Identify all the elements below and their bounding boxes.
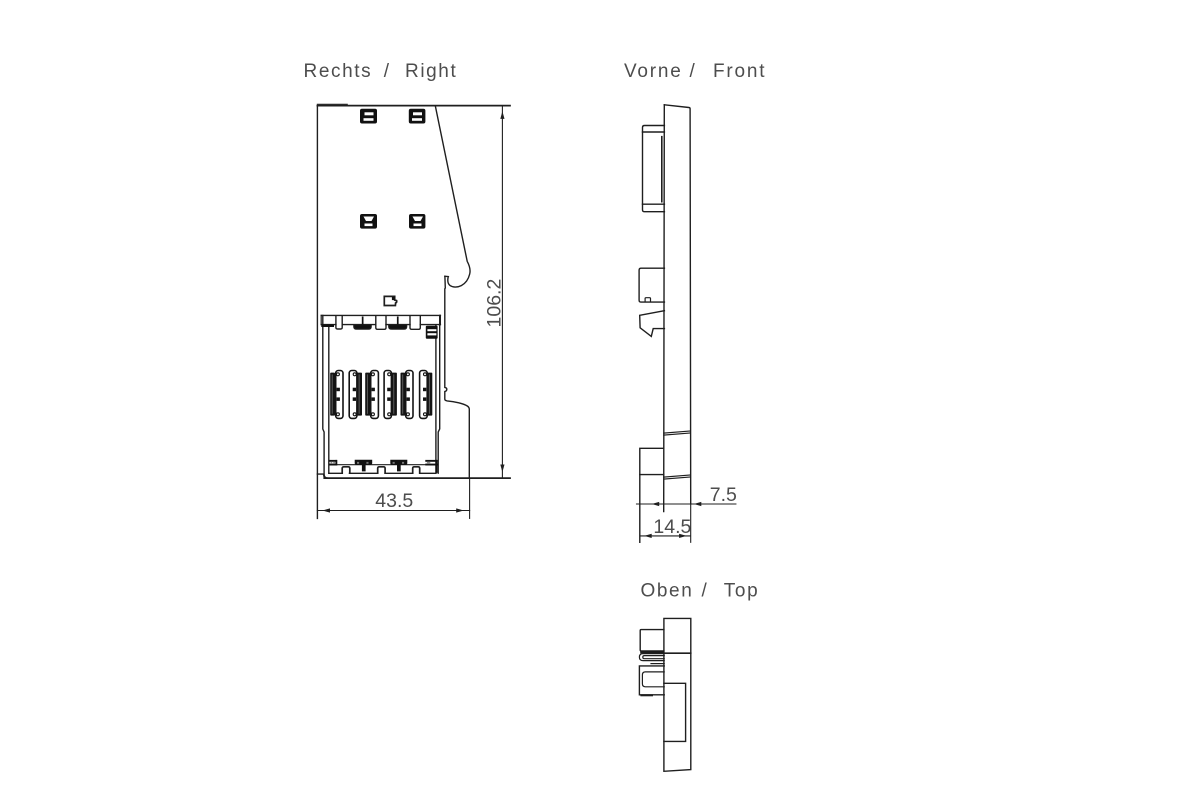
svg-text:Rechts: Rechts [304, 61, 373, 82]
svg-text:43.5: 43.5 [375, 490, 413, 512]
svg-text:7.5: 7.5 [710, 484, 737, 506]
svg-text:Front: Front [713, 61, 766, 82]
svg-text:Oben: Oben [641, 581, 694, 602]
svg-text:/: / [690, 61, 696, 82]
svg-text:Vorne: Vorne [624, 61, 683, 82]
svg-text:14.5: 14.5 [653, 516, 691, 538]
svg-text:Top: Top [724, 581, 759, 602]
svg-text:Right: Right [405, 61, 457, 82]
svg-text:106.2: 106.2 [484, 279, 506, 328]
svg-text:/: / [702, 581, 708, 602]
svg-text:/: / [384, 61, 390, 82]
